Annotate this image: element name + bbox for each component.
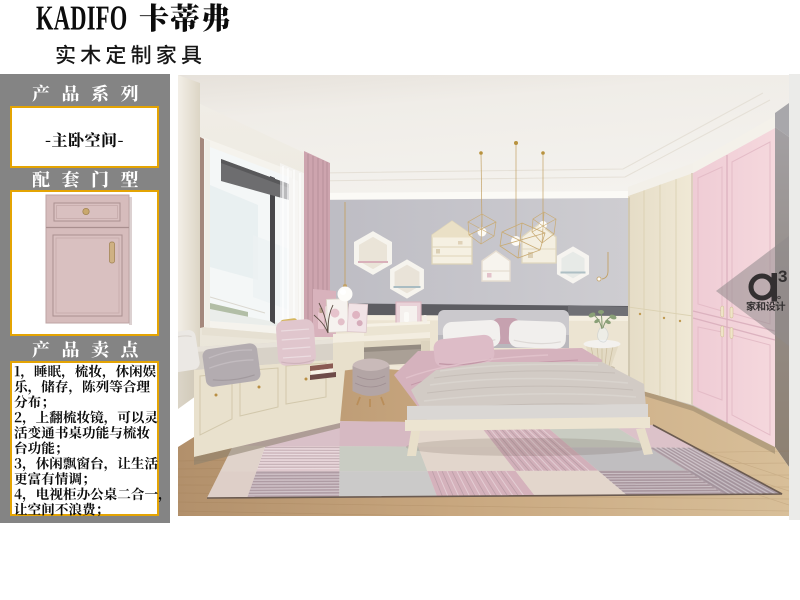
svg-text:3: 3	[778, 267, 787, 286]
